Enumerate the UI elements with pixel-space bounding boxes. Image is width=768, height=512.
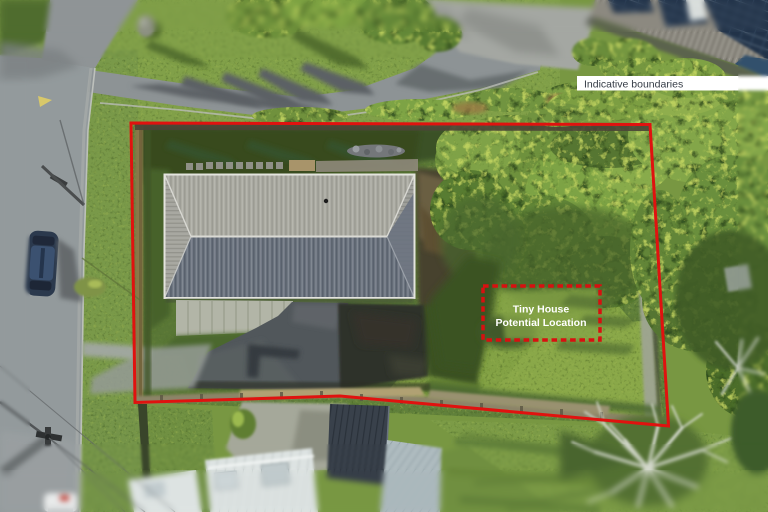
svg-text:Potential Location: Potential Location <box>495 317 586 329</box>
svg-text:Indicative boundaries: Indicative boundaries <box>584 79 683 91</box>
svg-text:Tiny House: Tiny House <box>513 304 570 316</box>
